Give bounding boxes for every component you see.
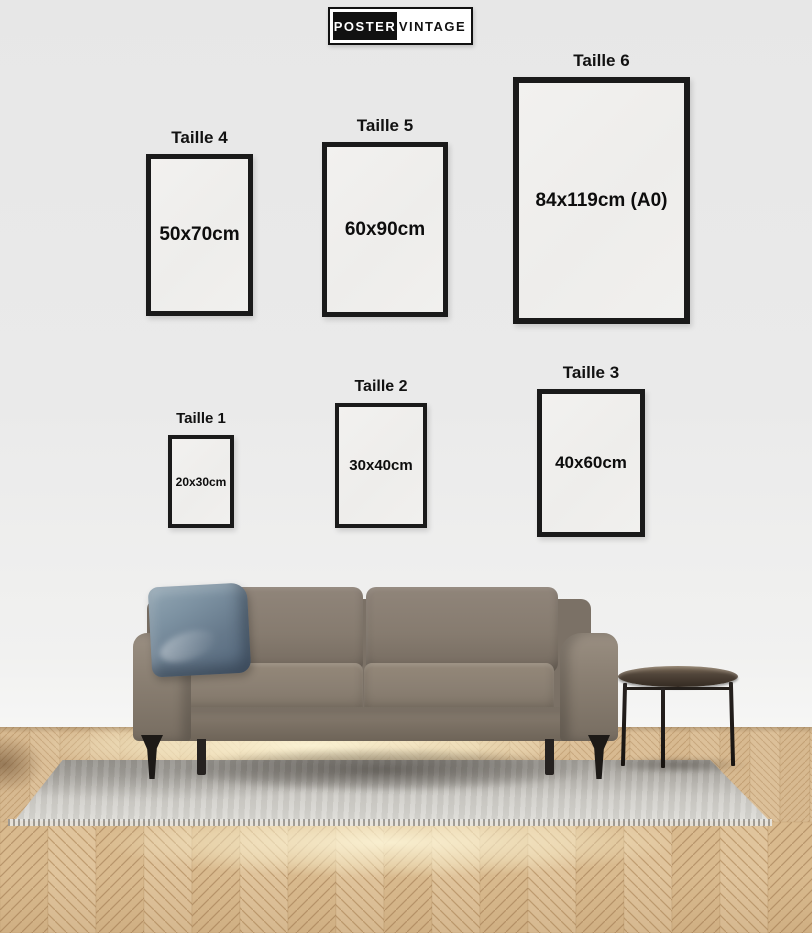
size-frame-label: Taille 5 (322, 116, 448, 136)
sofa-arm-right (560, 633, 618, 741)
sofa-leg-back-left (197, 739, 206, 775)
side-table-leg (661, 688, 665, 768)
size-frame-label: Taille 6 (513, 51, 690, 71)
size-frame-taille-6: Taille 6 84x119cm (A0) (513, 51, 690, 324)
size-frame-taille-5: Taille 5 60x90cm (322, 116, 448, 317)
size-frame-box: 30x40cm (335, 403, 427, 528)
size-frame-label: Taille 4 (146, 128, 253, 148)
size-frame-dimensions: 30x40cm (349, 457, 412, 474)
size-frame-box: 40x60cm (537, 389, 645, 537)
side-table-top (618, 666, 738, 687)
brand-logo-poster: POSTER (333, 12, 397, 40)
herringbone-floor-lower (0, 822, 812, 933)
size-frame-label: Taille 2 (335, 377, 427, 397)
size-frame-box: 60x90cm (322, 142, 448, 317)
size-frame-dimensions: 50x70cm (159, 224, 239, 246)
size-frame-dimensions: 60x90cm (345, 219, 425, 241)
sofa-pillow (148, 582, 252, 677)
size-frame-dimensions: 40x60cm (555, 453, 627, 473)
size-frame-taille-2: Taille 2 30x40cm (335, 377, 427, 528)
size-frame-label: Taille 3 (537, 363, 645, 383)
sofa-leg-back-right (545, 739, 554, 775)
table-shadow (606, 756, 750, 774)
size-frame-taille-3: Taille 3 40x60cm (537, 363, 645, 537)
rug-fringe (8, 819, 772, 826)
sofa-base (149, 707, 601, 741)
size-frame-dimensions: 84x119cm (A0) (535, 190, 667, 212)
sofa-leg-front-right (588, 735, 610, 779)
size-frame-taille-1: Taille 1 20x30cm (168, 409, 234, 528)
brand-logo: POSTER VINTAGE (328, 7, 473, 45)
size-frame-taille-4: Taille 4 50x70cm (146, 128, 253, 316)
sofa-back-cushion-right (366, 587, 558, 673)
brand-logo-vintage: VINTAGE (397, 12, 468, 40)
poster-size-guide: POSTER VINTAGE Taille 1 20x30cm Taille 2… (0, 0, 812, 933)
size-frame-label: Taille 1 (168, 409, 234, 429)
size-frame-box: 20x30cm (168, 435, 234, 528)
side-table-apron (623, 687, 733, 690)
size-frame-dimensions: 20x30cm (176, 475, 227, 489)
sofa-leg-front-left (141, 735, 163, 779)
size-frame-box: 84x119cm (A0) (513, 77, 690, 324)
size-frame-box: 50x70cm (146, 154, 253, 316)
